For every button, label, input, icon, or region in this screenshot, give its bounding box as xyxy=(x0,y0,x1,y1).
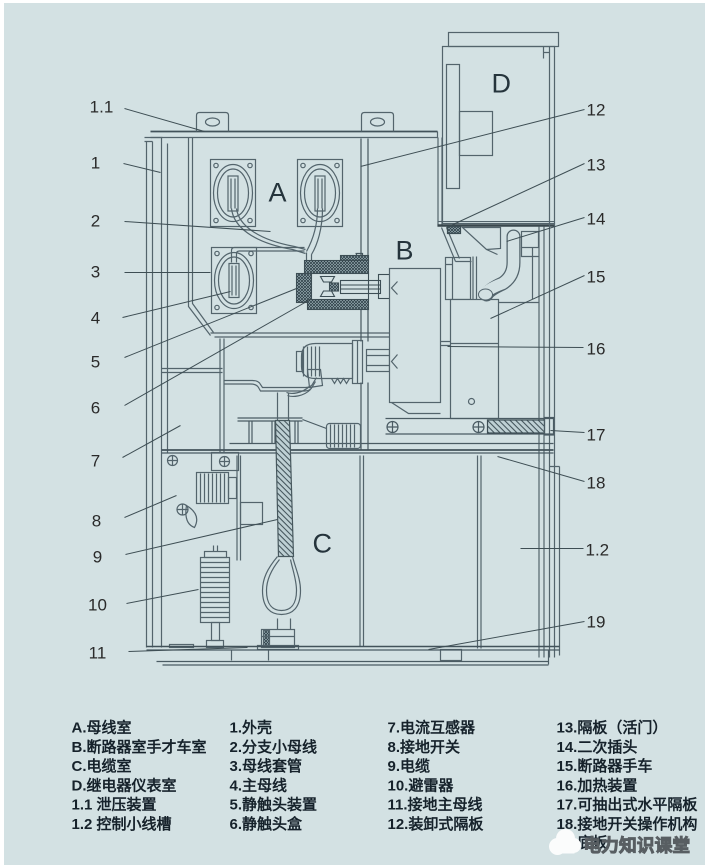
svg-text:B.断路器室手才车室: B.断路器室手才车室 xyxy=(72,738,207,756)
svg-text:10.避雷器: 10.避雷器 xyxy=(388,777,455,795)
svg-text:D.继电器仪表室: D.继电器仪表室 xyxy=(72,777,177,795)
svg-text:12: 12 xyxy=(587,101,606,120)
svg-text:2: 2 xyxy=(91,212,100,231)
svg-text:14: 14 xyxy=(587,210,606,229)
svg-text:5.静触头装置: 5.静触头装置 xyxy=(230,796,318,814)
svg-text:A.母线室: A.母线室 xyxy=(72,719,132,737)
svg-text:7: 7 xyxy=(91,452,100,471)
svg-text:3: 3 xyxy=(91,263,100,282)
svg-text:15: 15 xyxy=(587,268,606,287)
svg-text:8.接地开关: 8.接地开关 xyxy=(388,738,461,756)
svg-text:15.断路器手车: 15.断路器手车 xyxy=(557,757,653,775)
svg-text:电力知识课堂: 电力知识课堂 xyxy=(584,836,691,856)
svg-text:4: 4 xyxy=(91,309,100,328)
svg-text:C.电缆室: C.电缆室 xyxy=(72,757,132,775)
svg-text:3.母线套管: 3.母线套管 xyxy=(230,757,303,775)
svg-text:16.加热装置: 16.加热装置 xyxy=(557,777,638,795)
svg-text:1.外壳: 1.外壳 xyxy=(230,719,273,737)
svg-text:4.主母线: 4.主母线 xyxy=(230,777,288,795)
svg-text:1: 1 xyxy=(91,154,100,173)
svg-text:2.分支小母线: 2.分支小母线 xyxy=(230,738,318,756)
svg-text:1.2 控制小线槽: 1.2 控制小线槽 xyxy=(72,815,172,833)
svg-text:D: D xyxy=(492,69,512,99)
svg-text:6.静触头盒: 6.静触头盒 xyxy=(230,815,304,833)
svg-text:16: 16 xyxy=(587,340,606,359)
svg-text:6: 6 xyxy=(91,399,100,418)
svg-text:11: 11 xyxy=(89,644,107,663)
svg-text:5: 5 xyxy=(91,353,100,372)
svg-text:10: 10 xyxy=(88,596,107,615)
svg-text:1.1 泄压装置: 1.1 泄压装置 xyxy=(72,796,157,814)
svg-text:17.可抽出式水平隔板: 17.可抽出式水平隔板 xyxy=(557,796,699,814)
svg-text:C: C xyxy=(313,529,333,559)
svg-text:14.二次插头: 14.二次插头 xyxy=(557,738,638,756)
svg-text:1.1: 1.1 xyxy=(90,98,114,117)
svg-text:18: 18 xyxy=(587,474,606,493)
svg-text:A: A xyxy=(269,178,287,208)
svg-text:8: 8 xyxy=(92,512,101,531)
svg-text:17: 17 xyxy=(587,426,606,445)
svg-text:13: 13 xyxy=(587,156,606,175)
svg-text:B: B xyxy=(396,236,414,266)
svg-text:18.接地开关操作机构: 18.接地开关操作机构 xyxy=(557,815,698,833)
svg-text:19: 19 xyxy=(587,613,606,632)
svg-text:13.隔板（活门）: 13.隔板（活门） xyxy=(557,719,668,737)
svg-text:1.2: 1.2 xyxy=(586,541,610,560)
svg-text:12.装卸式隔板: 12.装卸式隔板 xyxy=(388,815,485,833)
svg-text:11.接地主母线: 11.接地主母线 xyxy=(388,796,483,814)
svg-text:7.电流互感器: 7.电流互感器 xyxy=(388,719,477,737)
svg-text:9.电缆: 9.电缆 xyxy=(388,757,431,775)
svg-text:9: 9 xyxy=(93,548,102,567)
